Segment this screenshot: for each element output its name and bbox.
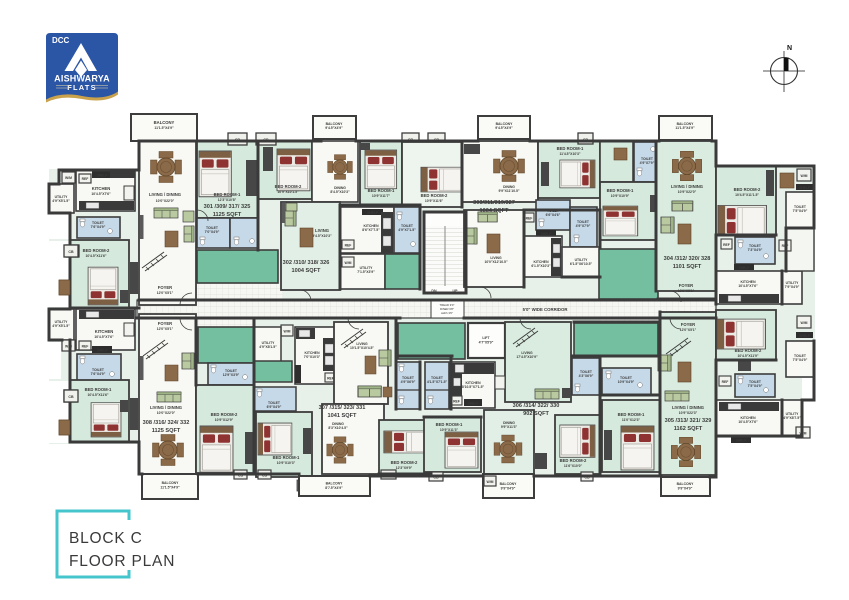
svg-text:BED ROOM-1: BED ROOM-1 [557, 146, 584, 151]
svg-text:10'4.5"X11'9": 10'4.5"X11'9" [737, 354, 758, 358]
svg-text:12'0"X5'1": 12'0"X5'1" [157, 291, 174, 295]
svg-text:6'6"X4'6": 6'6"X4'6" [546, 213, 561, 217]
svg-text:11'1.5"X4'9": 11'1.5"X4'9" [160, 486, 180, 490]
svg-text:BALCONY: BALCONY [326, 482, 344, 486]
svg-text:6'1.5"X10'3": 6'1.5"X10'3" [531, 264, 551, 268]
svg-text:4'9"X8'1.5": 4'9"X8'1.5" [259, 345, 277, 349]
svg-text:LIVING / DINING: LIVING / DINING [150, 405, 182, 410]
svg-text:1041 SQFT: 1041 SQFT [328, 413, 357, 419]
svg-text:303/311/319/327: 303/311/319/327 [473, 200, 515, 206]
svg-text:BED ROOM-1: BED ROOM-1 [607, 188, 634, 193]
svg-text:9'4.5"X10'3": 9'4.5"X10'3" [312, 234, 332, 238]
svg-text:4'3"X6'9": 4'3"X6'9" [579, 374, 594, 378]
svg-text:SHELF: SHELF [739, 266, 750, 270]
svg-text:10'4.5"X7'6": 10'4.5"X7'6" [738, 284, 758, 288]
svg-text:BED ROOM-2: BED ROOM-2 [391, 460, 418, 465]
svg-text:REF: REF [723, 243, 730, 247]
svg-text:7'5"X4'9": 7'5"X4'9" [793, 358, 808, 362]
svg-text:12'0"X5'1": 12'0"X5'1" [678, 289, 695, 293]
svg-text:10'4.5"X11'6": 10'4.5"X11'6" [85, 254, 106, 258]
svg-text:1004 SQFT: 1004 SQFT [292, 268, 321, 274]
svg-text:7'1.5"X3'9": 7'1.5"X3'9" [357, 270, 375, 274]
svg-text:CB: CB [68, 250, 74, 254]
svg-text:W/M: W/M [801, 321, 808, 325]
svg-text:9'9"X11'3": 9'9"X11'3" [501, 425, 518, 429]
svg-text:BED ROOM-2: BED ROOM-2 [734, 187, 761, 192]
svg-text:4'9"X7'9": 4'9"X7'9" [640, 161, 655, 165]
svg-text:17'4.5"X10'9": 17'4.5"X10'9" [516, 355, 538, 359]
svg-text:10'0"X12'10.5": 10'0"X12'10.5" [484, 260, 508, 264]
svg-text:FOYER: FOYER [681, 322, 695, 327]
svg-text:BED ROOM-1: BED ROOM-1 [618, 412, 645, 417]
svg-text:4'9"X7'1.5": 4'9"X7'1.5" [398, 228, 416, 232]
svg-text:REF: REF [345, 244, 352, 248]
svg-text:4'9"X7'9": 4'9"X7'9" [576, 224, 591, 228]
svg-text:8'4.5"X10'3": 8'4.5"X10'3" [330, 190, 350, 194]
svg-text:10'9"X10'1.5": 10'9"X10'1.5" [277, 190, 299, 194]
svg-text:11'1.5"X4'9": 11'1.5"X4'9" [154, 126, 174, 130]
svg-text:BED ROOM-1: BED ROOM-1 [436, 422, 463, 427]
svg-text:9'4.5"X4'9": 9'4.5"X4'9" [325, 126, 343, 130]
svg-text:10'9"X11'3": 10'9"X11'3" [440, 428, 459, 432]
svg-text:8'10.5"X7'1.5": 8'10.5"X7'1.5" [462, 385, 485, 389]
svg-text:10'9"X22'0": 10'9"X22'0" [678, 190, 697, 194]
svg-text:W/M: W/M [487, 480, 494, 484]
svg-text:BALCONY: BALCONY [677, 482, 695, 486]
svg-text:12'0"X5'1": 12'0"X5'1" [157, 327, 174, 331]
svg-text:REF: REF [327, 377, 334, 381]
svg-text:12'3"X9'9": 12'3"X9'9" [396, 466, 413, 470]
svg-text:1162 SQFT: 1162 SQFT [674, 426, 703, 432]
svg-text:11'0"X12'3": 11'0"X12'3" [622, 418, 641, 422]
svg-text:11'6"X10'0": 11'6"X10'0" [564, 464, 583, 468]
svg-text:7'6"X4'9": 7'6"X4'9" [91, 372, 106, 376]
svg-text:SHELF: SHELF [468, 402, 479, 406]
svg-text:7'0"X10'3": 7'0"X10'3" [304, 355, 321, 359]
svg-text:BED ROOM-1: BED ROOM-1 [85, 387, 112, 392]
svg-text:BALCONY: BALCONY [500, 482, 518, 486]
svg-text:DCC: DCC [52, 36, 70, 45]
svg-text:10'0"X22'0": 10'0"X22'0" [156, 199, 175, 203]
svg-text:FOYER: FOYER [679, 283, 693, 288]
svg-text:REF: REF [82, 177, 89, 181]
svg-text:10'4.5"X11'1.5": 10'4.5"X11'1.5" [735, 193, 759, 197]
svg-text:902 SQFT: 902 SQFT [523, 411, 549, 417]
svg-text:7'3"X4'9": 7'3"X4'9" [748, 248, 763, 252]
svg-text:10'9"X10'9": 10'9"X10'9" [611, 194, 630, 198]
svg-text:W/M: W/M [345, 261, 352, 265]
svg-text:7'6"X4'9": 7'6"X4'9" [91, 225, 106, 229]
svg-text:10'1.5"X10'4.5": 10'1.5"X10'4.5" [350, 346, 374, 350]
svg-text:FLOOR PLAN: FLOOR PLAN [69, 553, 175, 570]
svg-text:306 /314/ 322/ 330: 306 /314/ 322/ 330 [513, 403, 560, 409]
svg-text:9'9"X4'9": 9'9"X4'9" [501, 487, 516, 491]
svg-text:11'4.5"X10'3": 11'4.5"X10'3" [559, 152, 580, 156]
svg-text:6'9"X4'9": 6'9"X4'9" [267, 405, 282, 409]
svg-text:8'3"X10'4.5": 8'3"X10'4.5" [328, 426, 348, 430]
svg-text:8'6"X7'7.5": 8'6"X7'7.5" [362, 228, 380, 232]
svg-text:REF: REF [526, 217, 533, 221]
svg-text:10'4.5"X11'6": 10'4.5"X11'6" [87, 393, 108, 397]
svg-text:FOYER: FOYER [158, 321, 172, 326]
svg-text:BED ROOM-2: BED ROOM-2 [421, 193, 448, 198]
svg-text:12'3"X10'8": 12'3"X10'8" [218, 198, 237, 202]
svg-text:width 3'6": width 3'6" [441, 311, 453, 315]
svg-text:7'0"X4'9": 7'0"X4'9" [205, 230, 220, 234]
svg-text:BED ROOM-1: BED ROOM-1 [273, 455, 300, 460]
svg-text:SHELF: SHELF [736, 439, 747, 443]
svg-text:7'9"X4'9": 7'9"X4'9" [785, 285, 800, 289]
svg-text:12'9"X3'9": 12'9"X3'9" [223, 373, 240, 377]
svg-text:4'9"X8'7.5": 4'9"X8'7.5" [783, 416, 801, 420]
svg-text:SHELF: SHELF [367, 211, 378, 215]
svg-text:BED ROOM-2: BED ROOM-2 [83, 248, 110, 253]
svg-text:4'9"X5'1.5": 4'9"X5'1.5" [52, 199, 70, 203]
svg-text:BED ROOM-2: BED ROOM-2 [275, 184, 302, 189]
svg-text:BALCONY: BALCONY [162, 481, 180, 485]
svg-text:10'4.5"X7'6": 10'4.5"X7'6" [738, 420, 758, 424]
svg-text:SHELF: SHELF [799, 186, 810, 190]
svg-text:10'9"X11'7": 10'9"X11'7" [372, 194, 391, 198]
svg-text:AISHWARYA: AISHWARYA [54, 74, 110, 84]
svg-text:9'4.5"X4'9": 9'4.5"X4'9" [495, 126, 513, 130]
svg-text:CB: CB [68, 395, 74, 399]
svg-text:10'9"X12'9": 10'9"X12'9" [215, 418, 234, 422]
svg-text:5'0" WIDE CORRIDOR: 5'0" WIDE CORRIDOR [523, 307, 569, 312]
svg-text:LIVING / DINING: LIVING / DINING [671, 184, 703, 189]
svg-text:4'9"X5'1.5": 4'9"X5'1.5" [52, 324, 70, 328]
svg-text:1101 SQFT: 1101 SQFT [673, 264, 702, 270]
svg-text:KITCHEN: KITCHEN [95, 329, 114, 334]
svg-text:W/M: W/M [284, 330, 291, 334]
svg-text:KITCHEN: KITCHEN [92, 186, 111, 191]
svg-text:9'9"X4'9": 9'9"X4'9" [678, 487, 693, 491]
svg-text:12'0"X5'1": 12'0"X5'1" [680, 328, 697, 332]
svg-text:1125 SQFT: 1125 SQFT [152, 428, 181, 434]
svg-text:10'9"X11'6": 10'9"X11'6" [425, 199, 444, 203]
svg-text:4'1.5"X7'1.5": 4'1.5"X7'1.5" [427, 380, 448, 384]
svg-text:LIFT: LIFT [482, 336, 490, 340]
svg-text:10'9"X10'3": 10'9"X10'3" [277, 461, 296, 465]
svg-text:10'4.5"X7'6": 10'4.5"X7'6" [91, 192, 111, 196]
svg-text:302 /310/ 318/ 326: 302 /310/ 318/ 326 [283, 260, 330, 266]
svg-text:307 /315/ 323/ 331: 307 /315/ 323/ 331 [319, 405, 366, 411]
svg-text:10'9"X4'9": 10'9"X4'9" [618, 380, 635, 384]
svg-text:REF: REF [453, 400, 460, 404]
svg-text:1125 SQFT: 1125 SQFT [213, 212, 242, 218]
svg-text:4'9"X6'9": 4'9"X6'9" [401, 380, 416, 384]
svg-text:305 /313/ 321/ 329: 305 /313/ 321/ 329 [665, 418, 712, 424]
svg-text:4'7"X5'9": 4'7"X5'9" [479, 341, 494, 345]
svg-text:6'1.5"X6'10.5": 6'1.5"X6'10.5" [570, 262, 593, 266]
svg-text:10'0"X22'0": 10'0"X22'0" [157, 411, 176, 415]
svg-text:LIVING: LIVING [315, 228, 329, 233]
svg-text:BED ROOM-2: BED ROOM-2 [560, 458, 587, 463]
svg-text:308 /316/ 324/ 332: 308 /316/ 324/ 332 [143, 420, 190, 426]
svg-text:N: N [787, 45, 792, 52]
svg-text:BLOCK C: BLOCK C [69, 530, 143, 547]
svg-text:301 /309/ 317/ 325: 301 /309/ 317/ 325 [204, 204, 251, 210]
svg-text:BED ROOM-1: BED ROOM-1 [214, 192, 241, 197]
svg-text:REF: REF [82, 345, 89, 349]
svg-text:7'5"X4'9": 7'5"X4'9" [793, 209, 808, 213]
svg-text:BED ROOM-2: BED ROOM-2 [211, 412, 238, 417]
svg-text:9'9"X11'10.5": 9'9"X11'10.5" [498, 189, 519, 193]
svg-text:FOYER: FOYER [158, 285, 172, 290]
svg-text:SHELF: SHELF [97, 349, 108, 353]
svg-text:7'5"X4'9": 7'5"X4'9" [748, 384, 763, 388]
svg-text:BALCONY: BALCONY [154, 120, 175, 125]
svg-text:8'7.5"X4'9": 8'7.5"X4'9" [325, 486, 343, 490]
svg-text:W/M: W/M [801, 174, 808, 178]
svg-text:REF: REF [722, 380, 729, 384]
svg-text:FLATS: FLATS [67, 83, 97, 92]
svg-text:10'9"X22'3": 10'9"X22'3" [679, 411, 698, 415]
svg-text:11'1.5"X4'9": 11'1.5"X4'9" [675, 126, 695, 130]
svg-text:LIVING / DINING: LIVING / DINING [149, 192, 181, 197]
svg-text:SHELF: SHELF [799, 334, 810, 338]
svg-text:304 /312/ 320/ 328: 304 /312/ 320/ 328 [664, 256, 711, 262]
svg-text:W/M: W/M [65, 176, 72, 180]
svg-text:SHELF: SHELF [97, 174, 108, 178]
svg-text:10'4.5"X7'6": 10'4.5"X7'6" [94, 335, 114, 339]
svg-text:LIVING / DINING: LIVING / DINING [672, 405, 704, 410]
